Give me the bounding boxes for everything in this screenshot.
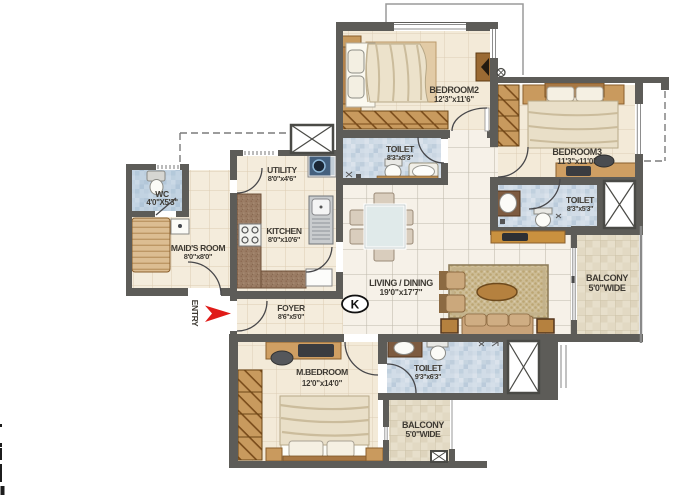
svg-text:TOILET: TOILET: [386, 144, 415, 154]
svg-text:ENTRY: ENTRY: [190, 300, 200, 327]
svg-text:TOILET: TOILET: [566, 195, 595, 205]
svg-text:8'3"x5'3": 8'3"x5'3": [567, 206, 593, 213]
svg-text:8'0"x10'6": 8'0"x10'6": [268, 235, 301, 244]
svg-text:8'0"x4'6": 8'0"x4'6": [268, 174, 297, 183]
svg-text:K: K: [351, 298, 360, 312]
svg-text:BALCONY: BALCONY: [586, 273, 628, 283]
svg-text:11'3"x11'0": 11'3"x11'0": [557, 157, 597, 166]
svg-text:12'3"x11'6": 12'3"x11'6": [434, 95, 474, 104]
svg-text:8'3"x5'3": 8'3"x5'3": [387, 155, 413, 162]
svg-text:8'6"x5'0": 8'6"x5'0": [278, 314, 304, 321]
svg-text:9'3"x6'3": 9'3"x6'3": [415, 374, 441, 381]
svg-text:BEDROOM2: BEDROOM2: [429, 85, 479, 95]
svg-text:4'0"X5'3": 4'0"X5'3": [146, 198, 178, 207]
svg-text:5'0"WIDE: 5'0"WIDE: [406, 429, 442, 439]
svg-text:12'0"x14'0": 12'0"x14'0": [302, 379, 343, 388]
svg-text:TOILET: TOILET: [414, 363, 443, 373]
svg-text:5'0"WIDE: 5'0"WIDE: [588, 283, 625, 293]
svg-text:8'0"x8'0": 8'0"x8'0": [184, 252, 213, 261]
svg-text:BEDROOM3: BEDROOM3: [552, 147, 602, 157]
svg-text:M.BEDROOM: M.BEDROOM: [296, 367, 348, 377]
svg-text:19'0"x17'7": 19'0"x17'7": [380, 287, 423, 297]
svg-text:FOYER: FOYER: [277, 303, 305, 313]
